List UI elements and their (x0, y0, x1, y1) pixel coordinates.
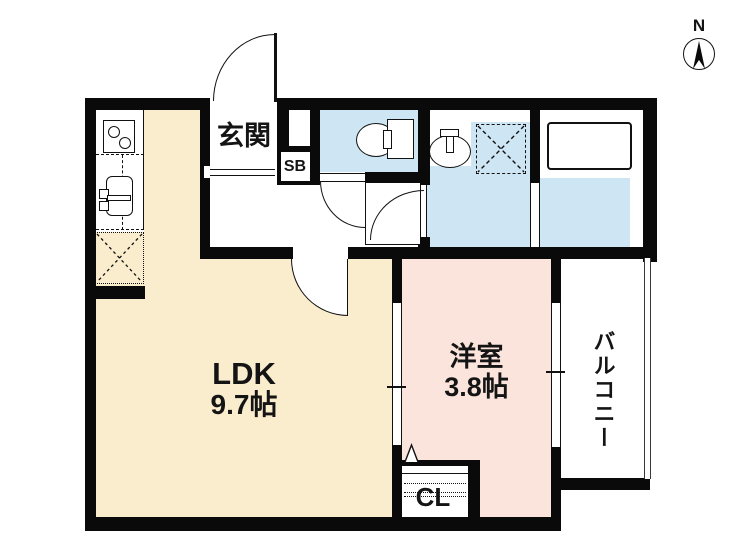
room-ldk-left-col (96, 299, 144, 517)
compass-north-label: N (683, 16, 715, 36)
toilet-flush-icon (383, 130, 392, 149)
bath-sliding-door (530, 183, 540, 247)
wall-western-left-bottom (392, 445, 402, 517)
room-bath-floor (540, 178, 630, 247)
wall-closet-right (468, 460, 480, 517)
refrigerator-space-icon (95, 232, 144, 284)
wall-toilet-bottom (365, 172, 430, 183)
shoebox-label: SB (278, 152, 312, 182)
genkan-step-edge (210, 169, 275, 176)
balcony-label: バルコニー (589, 302, 617, 478)
entrance-door-arc (213, 34, 275, 101)
stove-icon (103, 120, 135, 153)
stove-burner-icon (108, 126, 120, 138)
kitchen-faucet-spout-icon (107, 195, 131, 201)
wall-kitchen-stub (85, 286, 145, 299)
window-ldk-western (392, 303, 402, 445)
wall-top-right (277, 98, 657, 110)
wall-hall-south-a (200, 247, 293, 259)
wall-western-right-top (551, 259, 561, 303)
wall-western-right-bottom (551, 447, 561, 531)
wall-bottom (85, 517, 561, 531)
ldk-size-label: 9.7帖 (145, 390, 343, 420)
closet-label: CL (402, 482, 464, 514)
stove-burner-icon (119, 137, 131, 149)
wall-left (85, 98, 96, 531)
wall-top-left (85, 98, 210, 110)
floor-plan: 玄関 SB LDK 9.7帖 洋室 3.8帖 CL バルコニー N (0, 0, 750, 550)
western-room-label: 洋室 (402, 342, 551, 372)
wall-sb-right (313, 148, 320, 185)
washbasin-faucet-icon (446, 136, 454, 153)
western-room-size-label: 3.8帖 (402, 372, 551, 402)
bathtub-icon (547, 122, 632, 170)
kitchen-faucet-icon (99, 201, 109, 211)
balcony-railing (644, 258, 651, 479)
wall-hall-south-b (348, 247, 657, 259)
toilet-door-arc (320, 181, 365, 228)
ldk-label: LDK (145, 358, 343, 390)
washing-machine-space-icon (476, 124, 526, 174)
closet-door-track (402, 466, 468, 474)
wall-western-left-top (392, 259, 402, 303)
wall-wash-bath (530, 110, 540, 183)
genkan-label: 玄関 (208, 118, 280, 154)
kitchen-counter-divider (96, 154, 144, 155)
wall-right (643, 98, 657, 262)
window-western-balcony (551, 303, 561, 447)
wall-balcony-bottom (561, 478, 650, 490)
genkan-niche (289, 110, 310, 146)
room-ldk-strip (144, 110, 200, 259)
